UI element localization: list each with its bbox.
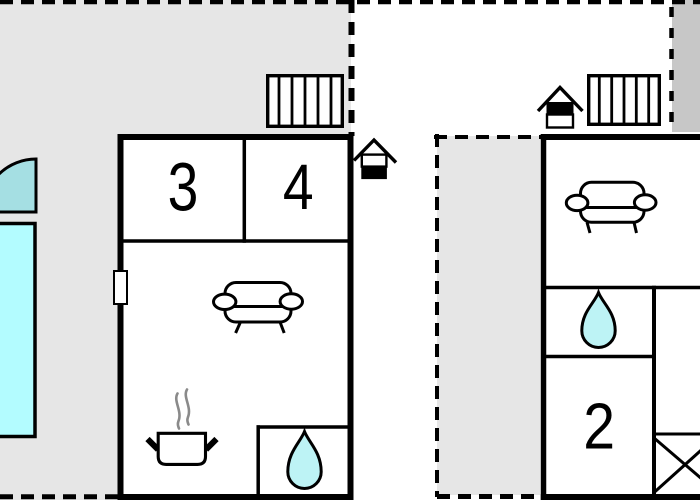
svg-text:4: 4: [283, 151, 314, 223]
svg-text:3: 3: [168, 150, 199, 226]
svg-text:2: 2: [583, 390, 615, 462]
